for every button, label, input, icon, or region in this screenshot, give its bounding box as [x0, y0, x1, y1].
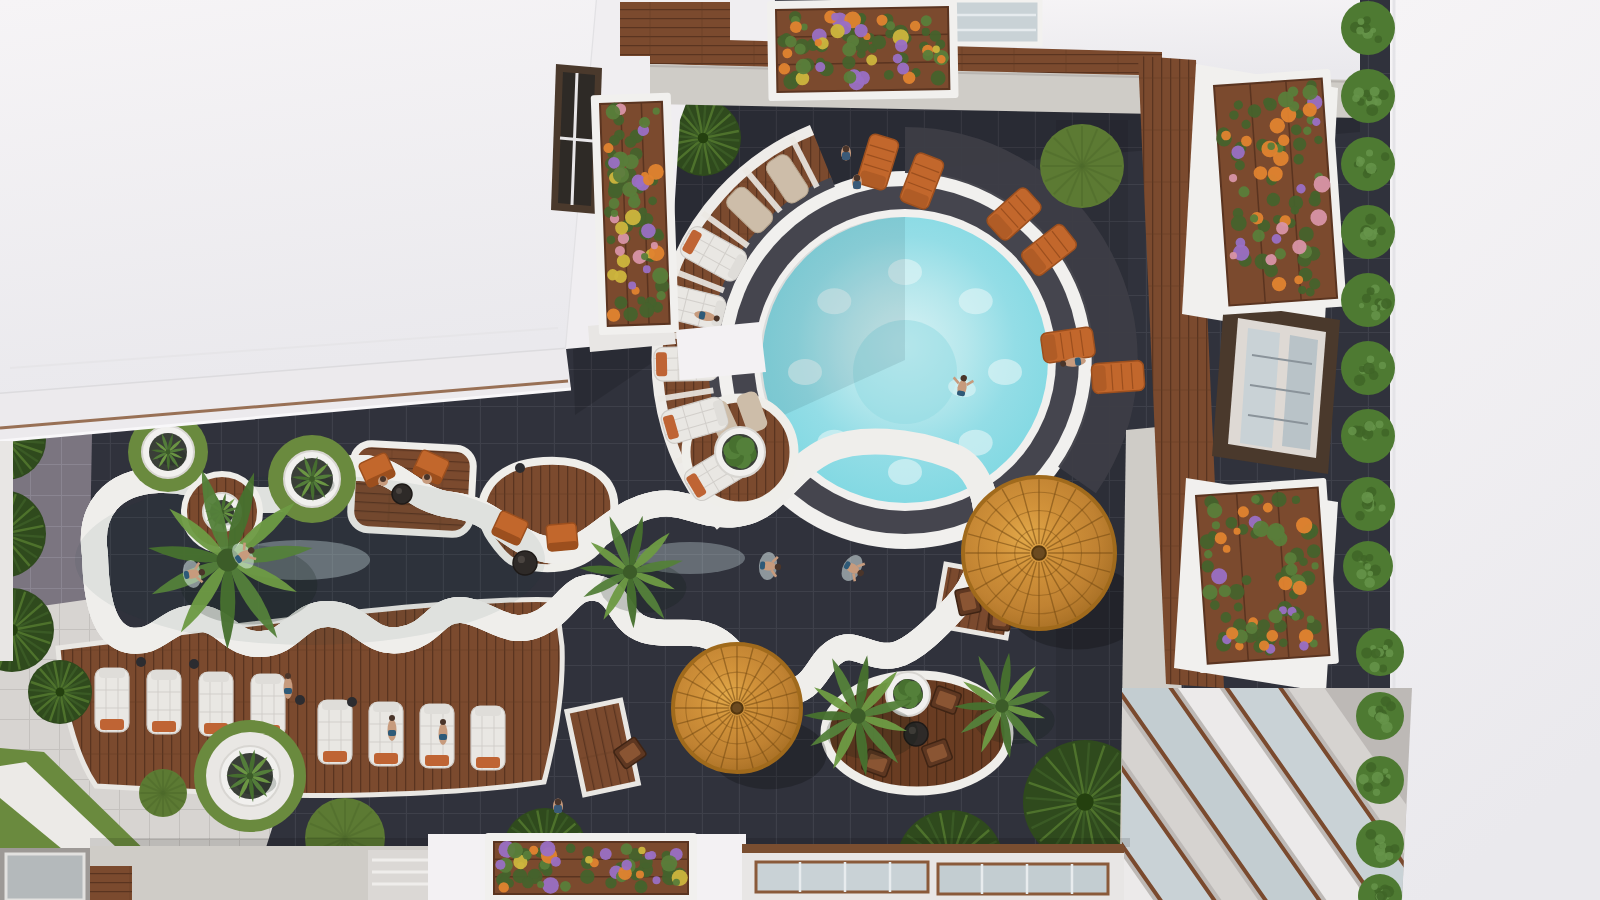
flower-cluster — [636, 871, 644, 879]
swim-shorts — [760, 561, 766, 569]
fan-core — [1076, 793, 1093, 810]
palm-crown — [309, 476, 315, 482]
flower-cluster — [499, 882, 509, 892]
orange-lounger — [1040, 327, 1096, 364]
flower-cluster — [560, 881, 571, 892]
clothes — [842, 152, 850, 160]
side-table — [347, 697, 357, 707]
bush-leaf — [1383, 768, 1389, 774]
box-foliage — [637, 880, 646, 889]
bush-leaf — [1376, 420, 1384, 428]
balcony-flower-box — [1204, 69, 1346, 315]
bush-leaf — [1361, 492, 1373, 504]
swimsuit — [388, 730, 396, 736]
clothes — [554, 805, 562, 813]
headrest — [151, 670, 177, 680]
bush-leaf — [1386, 649, 1394, 657]
aerial-courtyard-scene — [0, 0, 1600, 900]
person-seated — [378, 476, 388, 486]
turf-circle — [139, 769, 187, 817]
bush-leaf — [1371, 883, 1378, 890]
swimsuit — [439, 734, 447, 740]
head — [843, 146, 849, 152]
flower-cluster — [537, 881, 544, 888]
bush-leaf — [1364, 577, 1375, 588]
hedge-bush — [1341, 1, 1395, 55]
head — [555, 799, 561, 805]
bush-leaf — [1356, 569, 1366, 579]
bush-leaf — [1390, 844, 1399, 853]
flower-cluster — [540, 841, 555, 856]
flower-cluster — [600, 848, 612, 860]
bush-leaf — [1367, 356, 1375, 364]
white-lounger — [369, 702, 403, 766]
palm-crown — [995, 699, 1008, 712]
foot-pillow — [374, 753, 398, 764]
bush-leaf — [1371, 311, 1380, 320]
palm-crown — [850, 708, 865, 723]
side-table — [295, 695, 305, 705]
head — [854, 175, 860, 181]
bush-leaf — [1371, 649, 1381, 659]
white-lounger — [420, 704, 454, 768]
balcony-flower-box — [1186, 478, 1339, 673]
bush-leaf — [1356, 159, 1364, 167]
person-standing — [553, 799, 563, 814]
head — [285, 673, 291, 679]
person-standing — [841, 146, 851, 161]
flower-cluster — [517, 862, 524, 869]
bush-leaf — [1362, 294, 1371, 303]
clothes — [853, 181, 861, 189]
skylight-rail — [742, 844, 1124, 853]
circular-planter — [715, 427, 765, 477]
table-highlight — [518, 556, 525, 563]
hedge-bush — [1356, 756, 1404, 804]
bush-leaf — [1381, 298, 1392, 309]
headrest — [203, 672, 229, 682]
foot-pillow — [656, 352, 667, 376]
bush-leaf — [1352, 94, 1360, 102]
bush-leaf — [1383, 645, 1388, 650]
bush-leaf — [1365, 214, 1376, 225]
stairs — [368, 850, 432, 900]
head — [440, 719, 446, 725]
round-table — [392, 484, 412, 504]
balcony-flower-box — [767, 0, 959, 101]
bush-leaf — [1373, 789, 1380, 796]
parasol-hub — [1032, 546, 1046, 560]
bush-leaf — [1366, 554, 1373, 561]
side-table — [515, 463, 525, 473]
resort-pool-aerial-photo — [0, 0, 1600, 900]
bush-leaf — [1354, 375, 1365, 386]
headrest — [255, 674, 281, 684]
palm-crown — [166, 450, 171, 455]
bush-leaf — [1374, 98, 1381, 105]
hedge-bush — [1341, 137, 1395, 191]
fan-core — [56, 688, 65, 697]
bush-leaf — [1379, 504, 1386, 511]
pot-shrub — [905, 681, 922, 698]
orange-armchair — [546, 523, 578, 552]
lower-balcony-roof — [676, 322, 766, 380]
white-lounger — [318, 700, 352, 764]
balcony-flower-box — [485, 833, 697, 900]
flower-cluster — [621, 860, 631, 870]
bush-leaf — [1355, 511, 1364, 520]
main-roof — [0, 0, 597, 394]
table-highlight — [396, 488, 402, 494]
bush-leaf — [1375, 834, 1385, 844]
head — [380, 476, 386, 482]
flower-cluster — [507, 842, 523, 858]
fan-plant — [28, 660, 92, 724]
round-table — [513, 551, 537, 575]
person-seated — [422, 474, 432, 484]
bush-leaf — [1366, 762, 1376, 772]
foot-pillow — [476, 757, 500, 768]
flower-cluster — [647, 851, 656, 860]
headrest — [322, 700, 348, 710]
head — [424, 474, 430, 480]
palm-crown — [247, 773, 254, 780]
hedge-bush — [1341, 69, 1395, 123]
bush-leaf — [1370, 87, 1380, 97]
bush-leaf — [1364, 228, 1373, 237]
white-lounger — [471, 706, 505, 770]
bush-leaf — [1372, 772, 1384, 784]
hedge-bush — [1341, 205, 1395, 259]
flower-cluster — [523, 851, 532, 860]
bush-leaf — [1358, 18, 1365, 25]
bush-leaf — [1371, 305, 1377, 311]
flower-cluster — [585, 856, 593, 864]
box-foliage — [529, 869, 539, 879]
headrest — [99, 668, 125, 678]
foot-pillow — [323, 751, 347, 762]
box-foliage — [566, 844, 576, 854]
bush-leaf — [1366, 104, 1378, 116]
bush-leaf — [1379, 362, 1386, 369]
bush-leaf — [1378, 89, 1389, 100]
bush-leaf — [1375, 35, 1382, 42]
box-foliage — [522, 877, 533, 888]
bush-leaf — [1366, 163, 1377, 174]
right-roof — [1390, 0, 1600, 900]
hedge-bush — [1356, 820, 1404, 868]
bush-leaf — [1366, 149, 1373, 156]
orange-lounger — [1091, 360, 1145, 394]
bush-leaf — [1381, 721, 1392, 732]
bush-leaf — [1363, 782, 1373, 792]
hedge-bush — [1341, 341, 1395, 395]
bush-leaf — [1352, 550, 1363, 561]
bush-leaf — [1363, 362, 1375, 374]
pot-shrub — [736, 437, 755, 456]
headrest — [424, 704, 450, 714]
flower-cluster — [673, 879, 680, 886]
white-lounger — [147, 670, 181, 734]
swimsuit — [1074, 357, 1081, 366]
bush-leaf — [1385, 852, 1393, 860]
bush-leaf — [1366, 829, 1377, 840]
head — [389, 715, 395, 721]
hedge-bush — [1341, 409, 1395, 463]
flower-cluster — [621, 843, 633, 855]
bush-leaf — [1381, 152, 1390, 161]
bush-leaf — [1366, 95, 1372, 101]
hedge-bush — [1356, 628, 1404, 676]
hedge-bush — [1356, 692, 1404, 740]
parasol-hub — [731, 702, 743, 714]
water-light-spot — [988, 359, 1022, 385]
corner-glass — [6, 854, 84, 900]
hedge-bush — [1341, 477, 1395, 531]
bush-leaf — [1364, 421, 1374, 431]
bush-leaf — [1377, 226, 1386, 235]
palm-crown — [623, 565, 637, 579]
bush-leaf — [1348, 427, 1357, 436]
backrest — [1091, 365, 1107, 392]
bush-leaf — [1379, 665, 1387, 673]
skylight-panel — [756, 862, 928, 892]
flower-cluster — [653, 876, 661, 884]
bush-leaf — [1359, 303, 1364, 308]
hedge-bush — [1343, 541, 1393, 591]
white-lounger — [95, 668, 129, 732]
swimsuit — [284, 688, 292, 694]
foot-pillow — [100, 719, 124, 730]
bush-leaf — [1381, 429, 1389, 437]
foot-pillow — [152, 721, 176, 732]
skylight-panel — [938, 864, 1108, 894]
person-standing — [852, 175, 862, 190]
bush-leaf — [1368, 571, 1374, 577]
side-table — [189, 659, 199, 669]
bush-leaf — [1367, 287, 1375, 295]
turf-circle — [1040, 124, 1124, 208]
bush-leaf — [1381, 696, 1391, 706]
balcony-flower-box — [591, 93, 679, 336]
flower-cluster — [542, 877, 559, 894]
flower-cluster — [638, 847, 645, 854]
headrest — [475, 706, 501, 716]
circular-planter — [194, 720, 306, 832]
hedge-bush — [1341, 273, 1395, 327]
water-light-spot — [888, 459, 922, 485]
bush-leaf — [1375, 712, 1385, 722]
bush-leaf — [1369, 662, 1379, 672]
bush-leaf — [1365, 563, 1371, 569]
bush-leaf — [1363, 16, 1371, 24]
water-light-spot — [959, 288, 993, 314]
headrest — [373, 702, 399, 712]
box-foliage — [580, 870, 594, 884]
flower-cluster — [661, 855, 677, 871]
flower-cluster — [551, 857, 561, 867]
fan-core — [698, 133, 709, 144]
foot-pillow — [425, 755, 449, 766]
skylight-glass — [946, 0, 1040, 44]
bush-leaf — [1356, 27, 1364, 35]
flower-cluster — [495, 860, 505, 870]
side-table — [136, 657, 146, 667]
left-wall-edge — [0, 441, 13, 661]
